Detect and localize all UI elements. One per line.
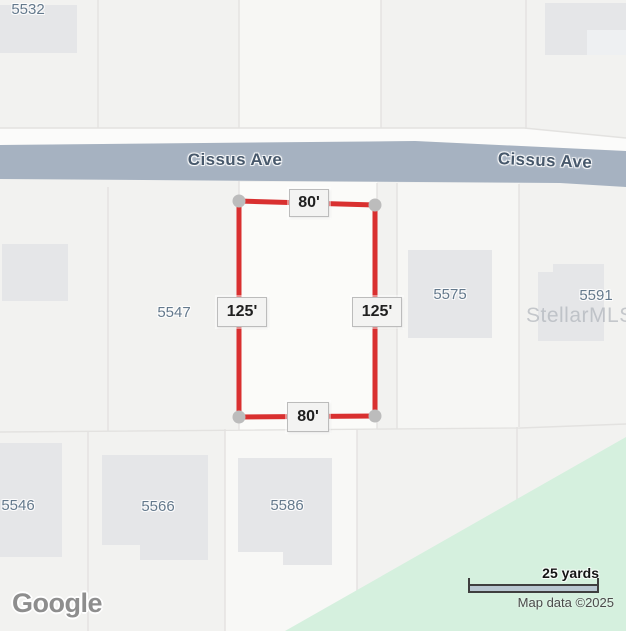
- lot-number-5566: 5566: [136, 498, 180, 515]
- building-left-mid: [2, 244, 68, 301]
- lot-number-5586: 5586: [265, 497, 309, 514]
- stellar-mls-watermark: StellarMLS: [526, 304, 626, 328]
- building-notch: [587, 30, 626, 55]
- lot-number-5546: 5546: [0, 497, 38, 514]
- lot-number-5591: 5591: [574, 287, 618, 304]
- dimension-value: 125': [227, 303, 258, 321]
- dimension-label-right: 125': [352, 297, 402, 327]
- dimension-label-top: 80': [289, 189, 329, 217]
- dimension-value: 125': [362, 303, 393, 321]
- dimension-value: 80': [298, 194, 320, 212]
- lot-number-5575: 5575: [428, 286, 472, 303]
- scale-bar: [468, 584, 599, 593]
- map-canvas[interactable]: 80' 125' 125' 80' Cissus Ave Cissus Ave …: [0, 0, 626, 631]
- building-top-right: [545, 3, 626, 55]
- street-label-cissus-ave-left: Cissus Ave: [173, 150, 297, 170]
- dimension-value: 80': [297, 408, 319, 426]
- lot-number-5547: 5547: [152, 304, 196, 321]
- google-logo[interactable]: Google: [12, 588, 102, 619]
- dimension-label-left: 125': [217, 297, 267, 327]
- map-attribution: Map data ©2025: [490, 595, 614, 610]
- lot-number-5532: 5532: [8, 1, 48, 18]
- parcel-fill: [239, 0, 381, 128]
- scale-bar-label: 25 yards: [468, 565, 599, 581]
- dimension-label-bottom: 80': [287, 402, 329, 432]
